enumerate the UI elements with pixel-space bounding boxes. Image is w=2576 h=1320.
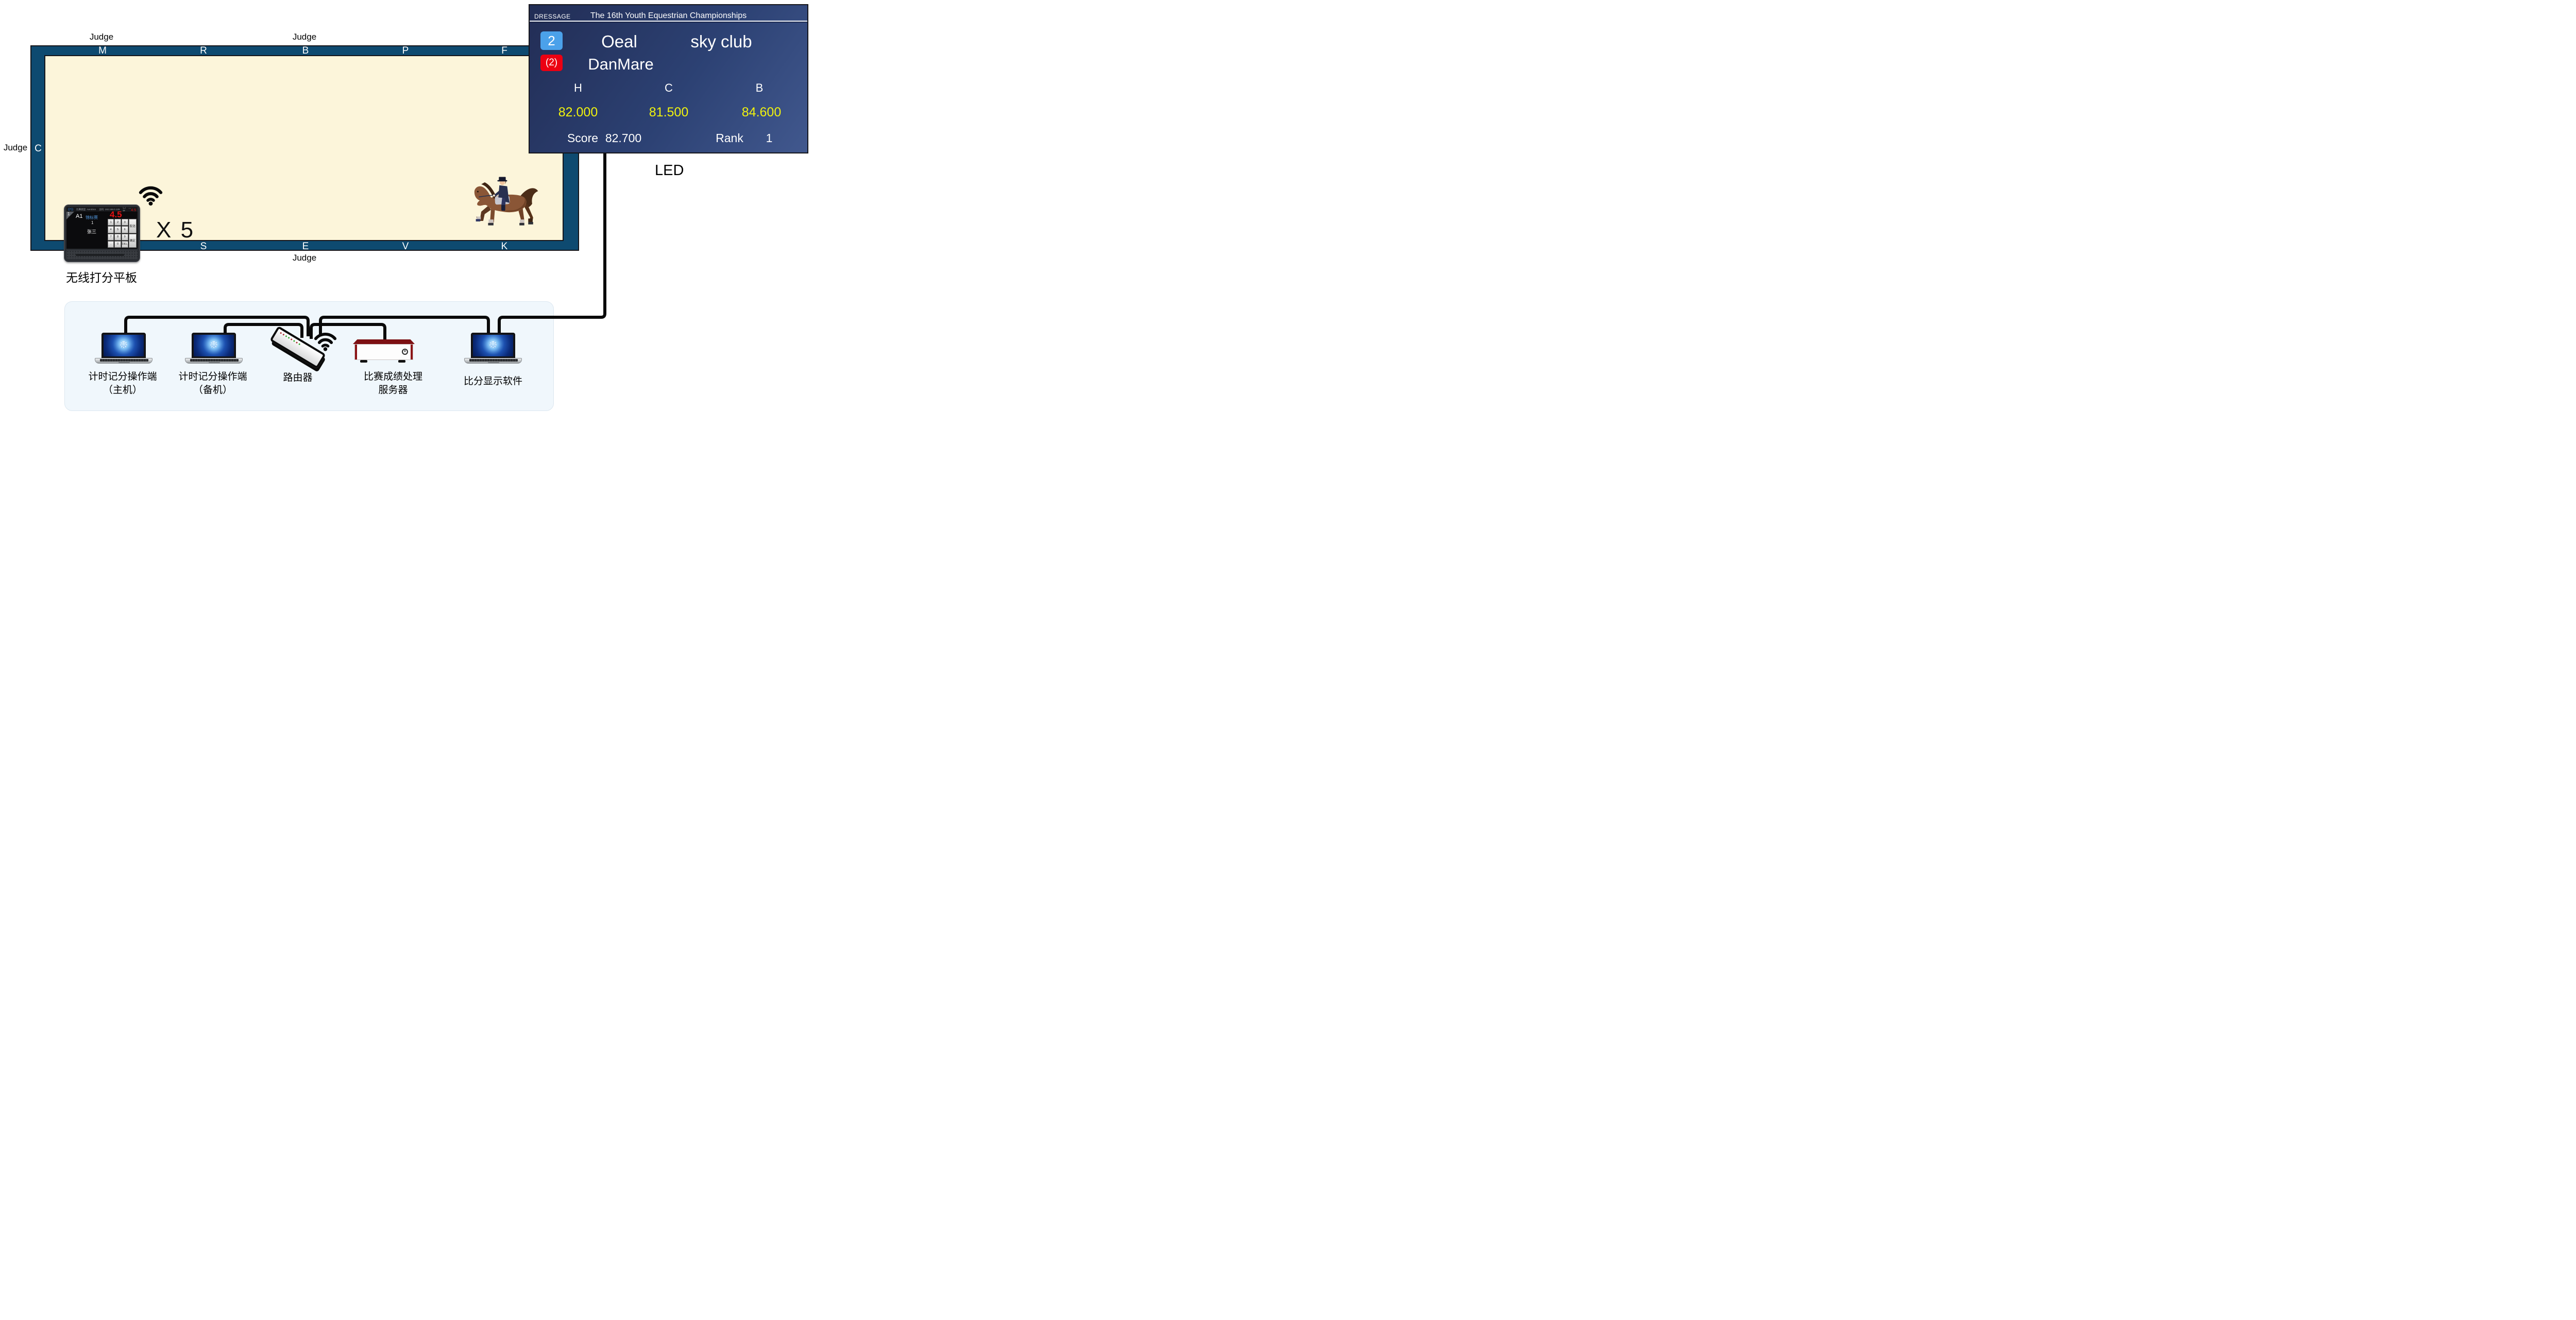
tablet-caption: 无线打分平板 xyxy=(66,268,137,285)
key-1[interactable]: 1 xyxy=(108,219,114,226)
laptop-timing-primary xyxy=(95,333,152,367)
label-display-software: 比分显示软件 xyxy=(464,375,522,388)
judge-label-bottom-e: Judge xyxy=(293,253,316,263)
total-score-label: Score xyxy=(567,131,598,145)
windows-boot-screen xyxy=(194,335,234,356)
wifi-icon xyxy=(138,183,163,206)
laptop-base xyxy=(464,358,522,364)
led-caption: LED xyxy=(655,162,684,179)
judge-position-c: C xyxy=(665,81,673,95)
judge-score-b: 84.600 xyxy=(742,105,781,120)
key-del[interactable]: DEL xyxy=(122,241,128,248)
judge-position-h: H xyxy=(574,81,582,95)
label-router: 路由器 xyxy=(283,371,312,385)
judge-label-top-m: Judge xyxy=(90,32,113,42)
label-laptop-primary-line1: 计时记分操作端 xyxy=(88,370,157,384)
entry-number-badge: 2 xyxy=(540,31,563,50)
label-laptop-primary-line2: （主机） xyxy=(88,384,157,397)
led-scoreboard: DRESSAGE The 16th Youth Equestrian Champ… xyxy=(529,4,808,153)
rider-name: Oeal xyxy=(601,32,637,52)
laptop-score-display xyxy=(464,333,522,367)
tablet-count-multiplier: X 5 xyxy=(156,217,195,243)
key-3[interactable]: 3 xyxy=(122,219,128,226)
judge-label-top-b: Judge xyxy=(293,32,316,42)
router-led-lights xyxy=(280,332,300,346)
server-top-face xyxy=(353,339,415,344)
diagram-page: M R B P F S E V K C Judge Judge Judge Ju… xyxy=(0,0,808,413)
athlete-name: 张三 xyxy=(87,228,96,235)
last-score: 4.5 xyxy=(131,209,136,212)
key-8[interactable]: 8 xyxy=(114,234,121,241)
laptop-trackpad xyxy=(118,362,130,363)
judge-position-code: A1 xyxy=(76,213,82,219)
horse-number-badge: (2) xyxy=(540,55,563,71)
horse-rider-illustration xyxy=(463,176,541,228)
label-server: 比赛成绩处理 服务器 xyxy=(364,370,422,397)
label-laptop-backup-line2: （备机） xyxy=(178,384,247,397)
arena-letter-C: C xyxy=(35,143,42,155)
arena-letter-K: K xyxy=(501,241,508,252)
label-server-line1: 比赛成绩处理 xyxy=(364,370,422,384)
tablet-screen: ((•)) 比赛类型: Aerobics 主机: 192.168.0.129 ▢… xyxy=(66,207,138,249)
scoreboard-title: The 16th Youth Equestrian Championships xyxy=(530,11,807,21)
current-score: 4.5 xyxy=(110,210,122,220)
key-7[interactable]: 7 xyxy=(108,234,114,241)
arena-letter-P: P xyxy=(402,45,409,57)
arena-letter-S: S xyxy=(200,241,207,252)
judge-score-c: 81.500 xyxy=(649,105,688,120)
label-laptop-backup: 计时记分操作端 （备机） xyxy=(178,370,247,397)
windows-boot-screen xyxy=(473,335,513,356)
laptop-trackpad xyxy=(209,362,220,363)
wifi-icon xyxy=(313,330,337,351)
key-5[interactable]: 5 xyxy=(114,226,121,233)
laptop-screen xyxy=(192,333,236,358)
boot-spinner-icon xyxy=(490,341,497,348)
label-display-software-text: 比分显示软件 xyxy=(464,375,522,388)
tablet-stand-slot xyxy=(76,254,124,256)
horse-name: DanMare xyxy=(588,55,654,74)
slot-number: 1 xyxy=(67,212,70,216)
label-router-text: 路由器 xyxy=(283,371,312,385)
rank-label: Rank xyxy=(716,131,743,145)
scoring-tablet: ((•)) 比赛类型: Aerobics 主机: 192.168.0.129 ▢… xyxy=(64,204,140,262)
round-number: 1 xyxy=(91,220,93,225)
windows-boot-screen xyxy=(104,335,144,356)
judge-label-left-c: Judge xyxy=(4,143,27,153)
arena-letter-E: E xyxy=(302,241,309,252)
laptop-timing-backup xyxy=(185,333,243,367)
numeric-keypad: 1 2 3 取消 4 5 6 7 8 9 确定 . 0 DEL xyxy=(108,219,137,248)
arena-letter-M: M xyxy=(98,45,107,57)
key-9[interactable]: 9 xyxy=(122,234,128,241)
arena-letter-B: B xyxy=(302,45,309,57)
cancel-key[interactable]: 取消 xyxy=(129,219,137,233)
event-name: 锦标赛 xyxy=(86,215,98,220)
label-laptop-primary: 计时记分操作端 （主机） xyxy=(88,370,157,397)
laptop-base xyxy=(95,358,152,364)
scoreboard-divider xyxy=(530,21,807,22)
laptop-keyboard xyxy=(100,359,148,362)
laptop-keyboard xyxy=(469,359,518,362)
boot-spinner-icon xyxy=(121,341,127,348)
server-front-face xyxy=(354,344,413,360)
wifi-status-icon: ((•)) xyxy=(68,208,73,211)
statusbar-competition-type: 比赛类型: Aerobics xyxy=(76,208,96,211)
arena-letter-F: F xyxy=(501,45,507,57)
server-foot xyxy=(360,360,367,363)
arena-letter-V: V xyxy=(402,241,409,252)
key-4[interactable]: 4 xyxy=(108,226,114,233)
laptop-keyboard xyxy=(190,359,239,362)
tablet-statusbar: ((•)) 比赛类型: Aerobics 主机: 192.168.0.129 ▢… xyxy=(66,207,138,212)
judge-score-h: 82.000 xyxy=(558,105,598,120)
label-server-line2: 服务器 xyxy=(364,384,422,397)
key-2[interactable]: 2 xyxy=(114,219,121,226)
judge-position-b: B xyxy=(756,81,764,95)
arena-letter-R: R xyxy=(200,45,207,57)
boot-spinner-icon xyxy=(211,341,217,348)
laptop-trackpad xyxy=(488,362,499,363)
club-name: sky club xyxy=(690,32,752,52)
key-0[interactable]: 0 xyxy=(114,241,121,248)
total-score-value: 82.700 xyxy=(605,131,641,145)
laptop-screen xyxy=(101,333,146,358)
laptop-base xyxy=(185,358,243,364)
key-6[interactable]: 6 xyxy=(122,226,128,233)
confirm-key[interactable]: 确定 xyxy=(129,234,137,248)
laptop-screen xyxy=(471,333,515,358)
label-laptop-backup-line1: 计时记分操作端 xyxy=(178,370,247,384)
results-server xyxy=(353,339,415,363)
key-dot[interactable]: . xyxy=(108,241,114,248)
server-foot xyxy=(398,360,405,363)
power-button[interactable] xyxy=(402,349,408,355)
rank-value: 1 xyxy=(766,131,773,145)
